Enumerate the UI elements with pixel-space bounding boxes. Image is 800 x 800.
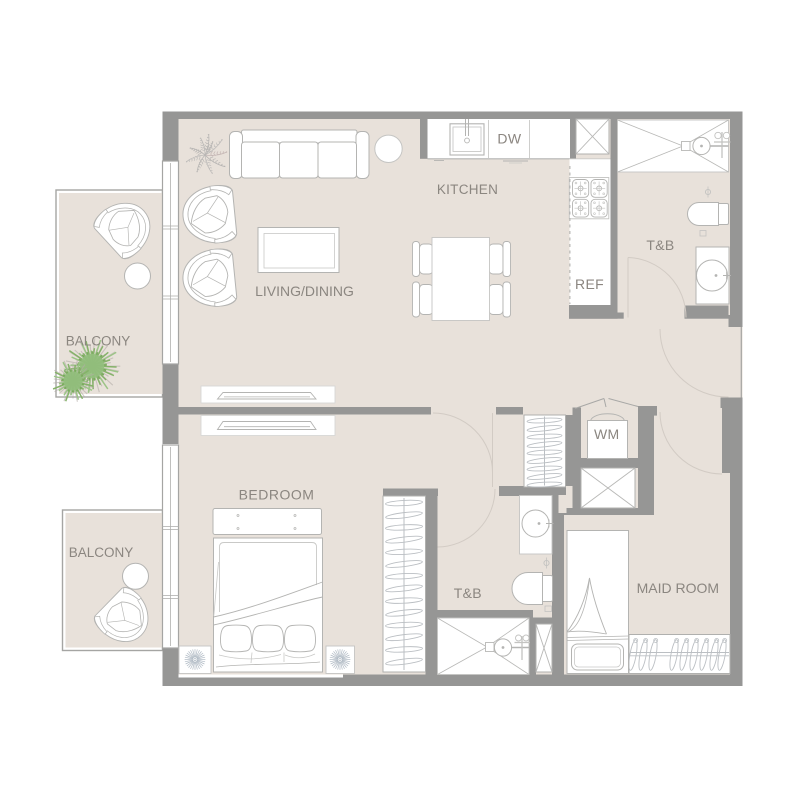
svg-text:LIVING/DINING: LIVING/DINING xyxy=(255,283,354,299)
svg-text:BALCONY: BALCONY xyxy=(66,334,131,349)
svg-text:T&B: T&B xyxy=(454,585,482,601)
svg-text:REF: REF xyxy=(575,276,604,292)
svg-text:MAID ROOM: MAID ROOM xyxy=(637,580,719,596)
svg-text:KITCHEN: KITCHEN xyxy=(437,182,498,197)
svg-text:T&B: T&B xyxy=(646,237,674,253)
svg-text:BALCONY: BALCONY xyxy=(69,545,134,560)
svg-text:WM: WM xyxy=(594,426,619,442)
svg-text:BEDROOM: BEDROOM xyxy=(239,487,315,503)
svg-text:DW: DW xyxy=(497,131,521,147)
